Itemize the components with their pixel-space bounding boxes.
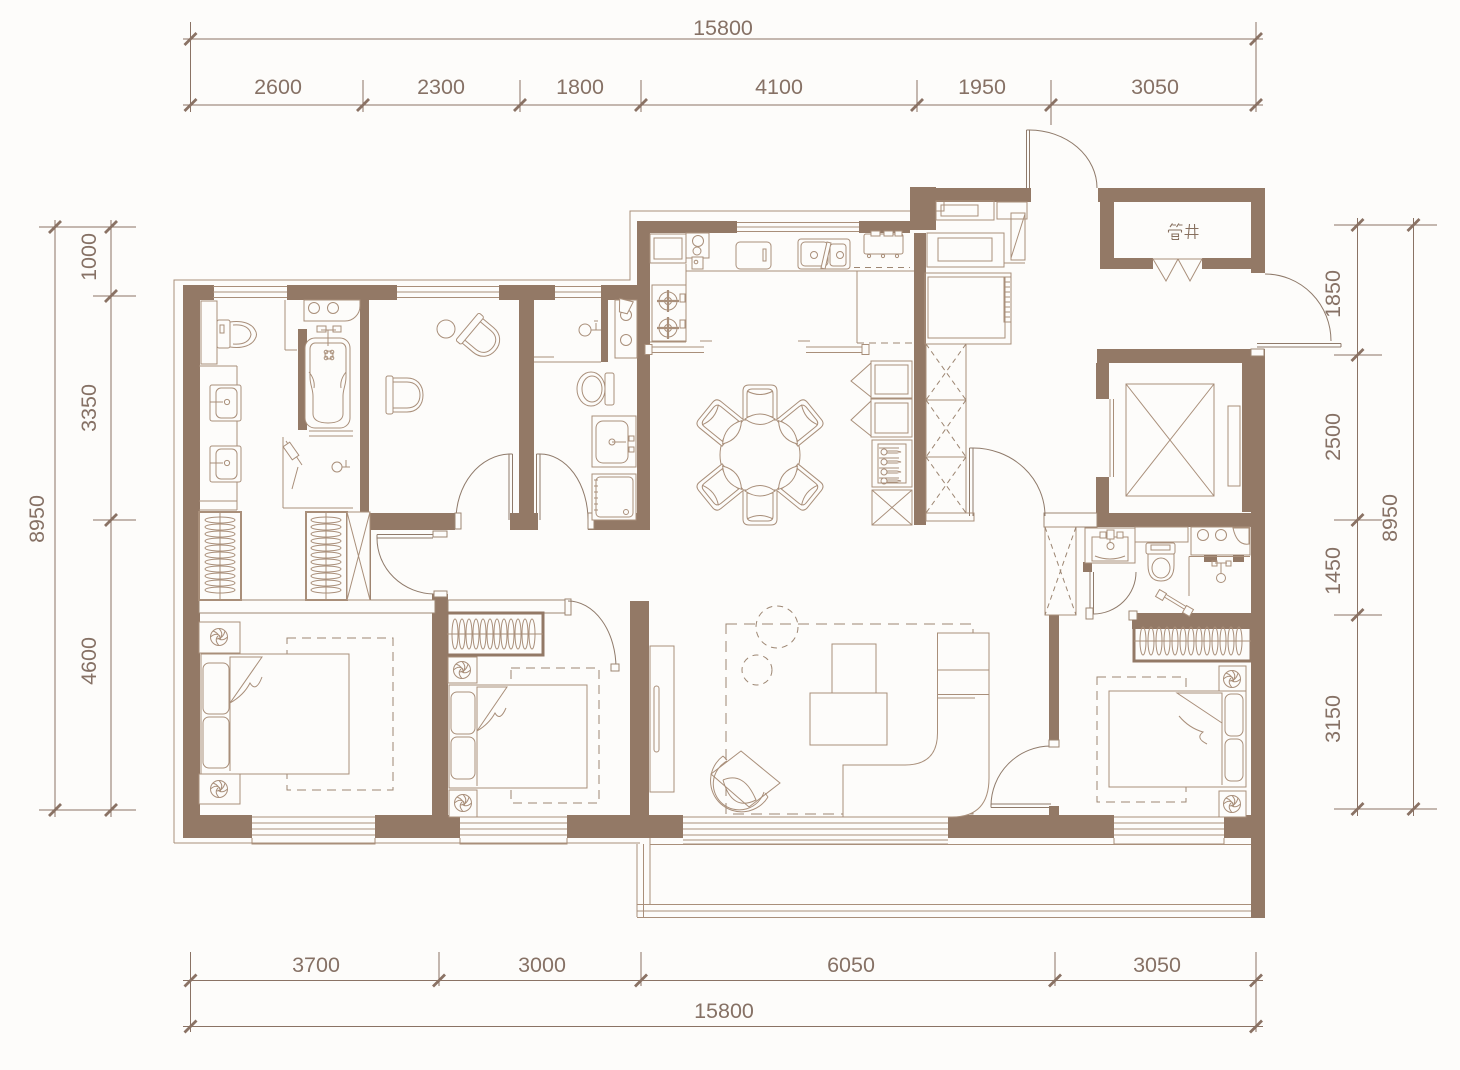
svg-text:4600: 4600 <box>77 637 101 685</box>
svg-text:4100: 4100 <box>755 75 803 99</box>
svg-text:2300: 2300 <box>417 75 465 99</box>
svg-text:8950: 8950 <box>1378 494 1402 542</box>
svg-text:2500: 2500 <box>1321 413 1345 461</box>
svg-text:3350: 3350 <box>77 384 101 432</box>
svg-text:15800: 15800 <box>693 16 753 40</box>
svg-text:15800: 15800 <box>694 999 754 1023</box>
svg-text:6050: 6050 <box>827 953 875 977</box>
svg-text:1800: 1800 <box>556 75 604 99</box>
svg-text:3700: 3700 <box>292 953 340 977</box>
svg-text:1000: 1000 <box>77 233 101 281</box>
svg-text:2600: 2600 <box>254 75 302 99</box>
svg-text:1950: 1950 <box>958 75 1006 99</box>
svg-text:1850: 1850 <box>1321 270 1345 318</box>
svg-text:3000: 3000 <box>518 953 566 977</box>
svg-text:3150: 3150 <box>1321 695 1345 743</box>
svg-text:3050: 3050 <box>1133 953 1181 977</box>
svg-text:8950: 8950 <box>25 495 49 543</box>
svg-text:3050: 3050 <box>1131 75 1179 99</box>
svg-text:1450: 1450 <box>1321 547 1345 595</box>
